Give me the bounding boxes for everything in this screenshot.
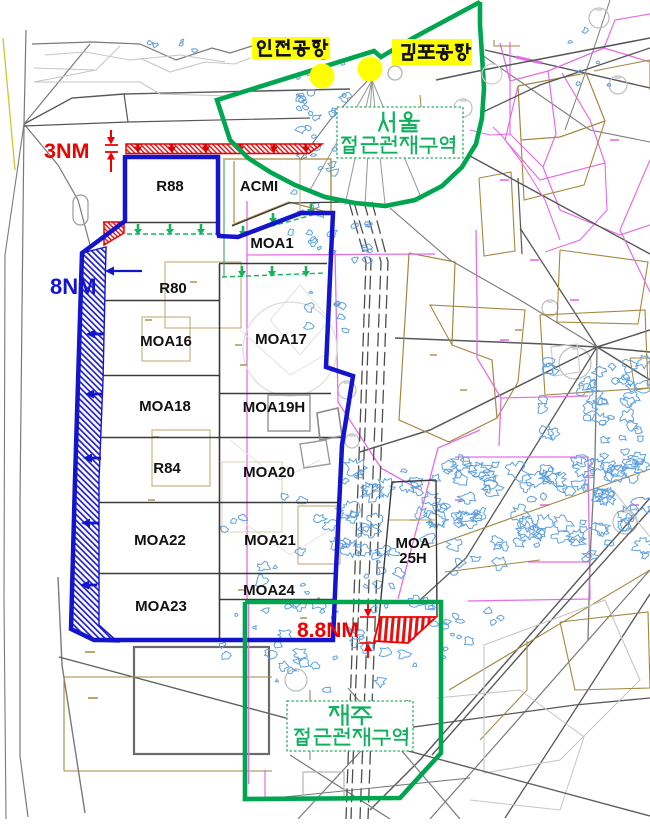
svg-text:MOA17: MOA17 (255, 331, 307, 348)
svg-text:25H: 25H (399, 550, 427, 567)
svg-text:3NM: 3NM (44, 139, 89, 163)
svg-text:MOA1: MOA1 (250, 235, 293, 252)
svg-text:R88: R88 (156, 178, 184, 195)
svg-text:8NM: 8NM (50, 274, 96, 299)
svg-text:R80: R80 (159, 280, 187, 297)
svg-text:R84: R84 (153, 460, 181, 477)
svg-text:MOA21: MOA21 (244, 532, 296, 549)
svg-text:MOA20: MOA20 (243, 464, 295, 481)
svg-text:MOA16: MOA16 (140, 333, 192, 350)
svg-text:MOA22: MOA22 (134, 532, 186, 549)
svg-text:MOA23: MOA23 (135, 598, 187, 615)
svg-text:8.8NM: 8.8NM (297, 619, 359, 642)
svg-text:ACMI: ACMI (240, 178, 278, 195)
svg-text:MOA24: MOA24 (243, 582, 295, 599)
svg-text:MOA18: MOA18 (139, 398, 191, 415)
svg-text:MOA19H: MOA19H (243, 399, 306, 416)
